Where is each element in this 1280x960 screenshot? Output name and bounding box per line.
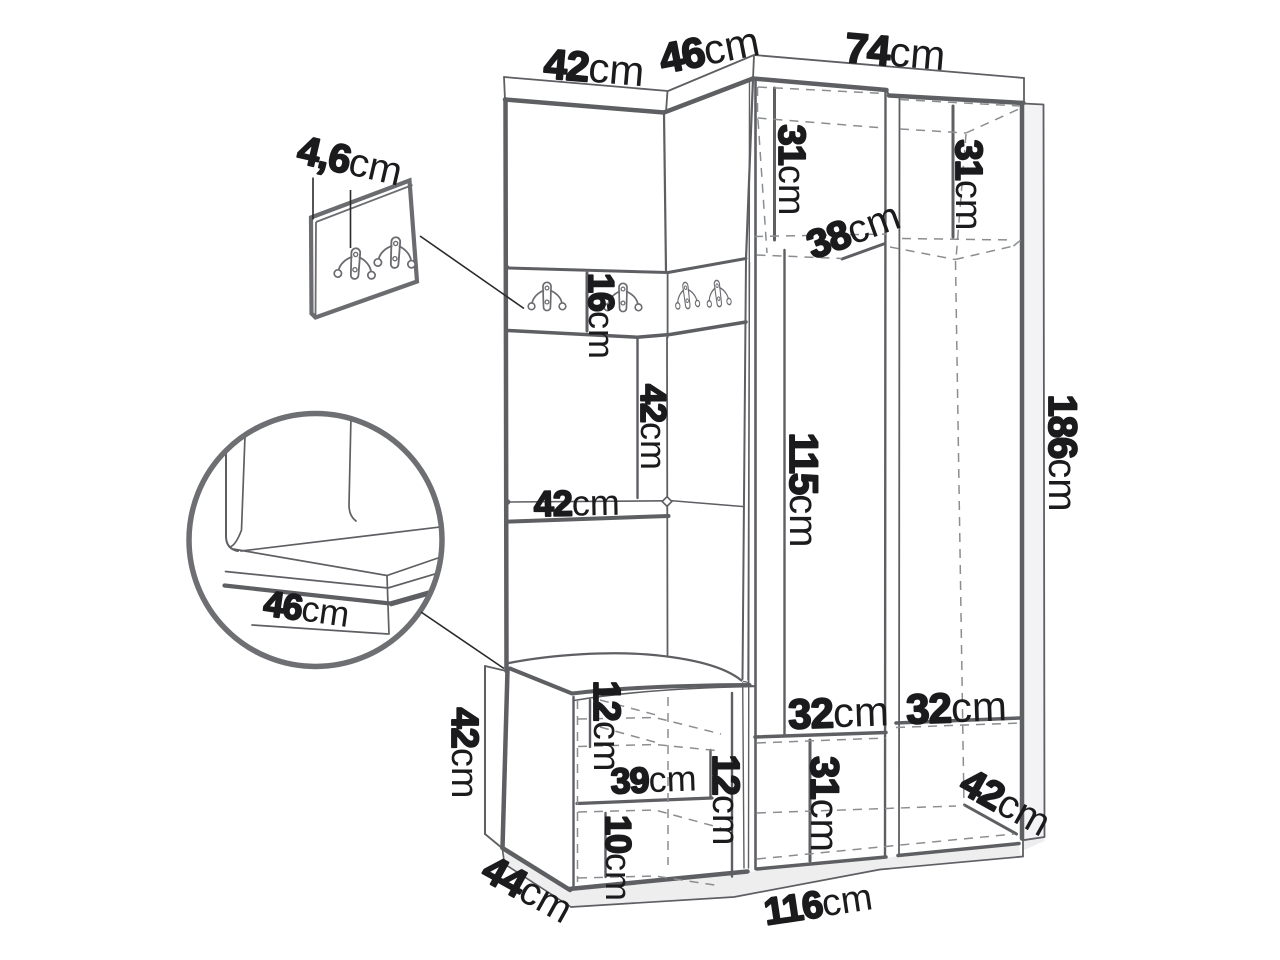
svg-text:186cm: 186cm	[1040, 394, 1084, 511]
svg-text:32cm: 32cm	[787, 687, 889, 737]
svg-text:31cm: 31cm	[770, 125, 812, 216]
svg-text:39cm: 39cm	[610, 758, 697, 802]
svg-text:12cm: 12cm	[585, 681, 627, 772]
svg-text:31cm: 31cm	[947, 140, 989, 231]
svg-text:42cm: 42cm	[542, 40, 646, 95]
svg-text:31cm: 31cm	[802, 756, 846, 852]
svg-text:12cm: 12cm	[704, 755, 746, 846]
svg-text:42cm: 42cm	[533, 482, 620, 524]
svg-text:16cm: 16cm	[581, 273, 622, 359]
svg-text:115cm: 115cm	[781, 433, 825, 548]
svg-text:74cm: 74cm	[843, 24, 947, 79]
svg-text:32cm: 32cm	[905, 682, 1007, 732]
svg-text:42cm: 42cm	[633, 384, 674, 470]
svg-text:10cm: 10cm	[598, 815, 639, 901]
svg-text:42cm: 42cm	[443, 708, 485, 799]
